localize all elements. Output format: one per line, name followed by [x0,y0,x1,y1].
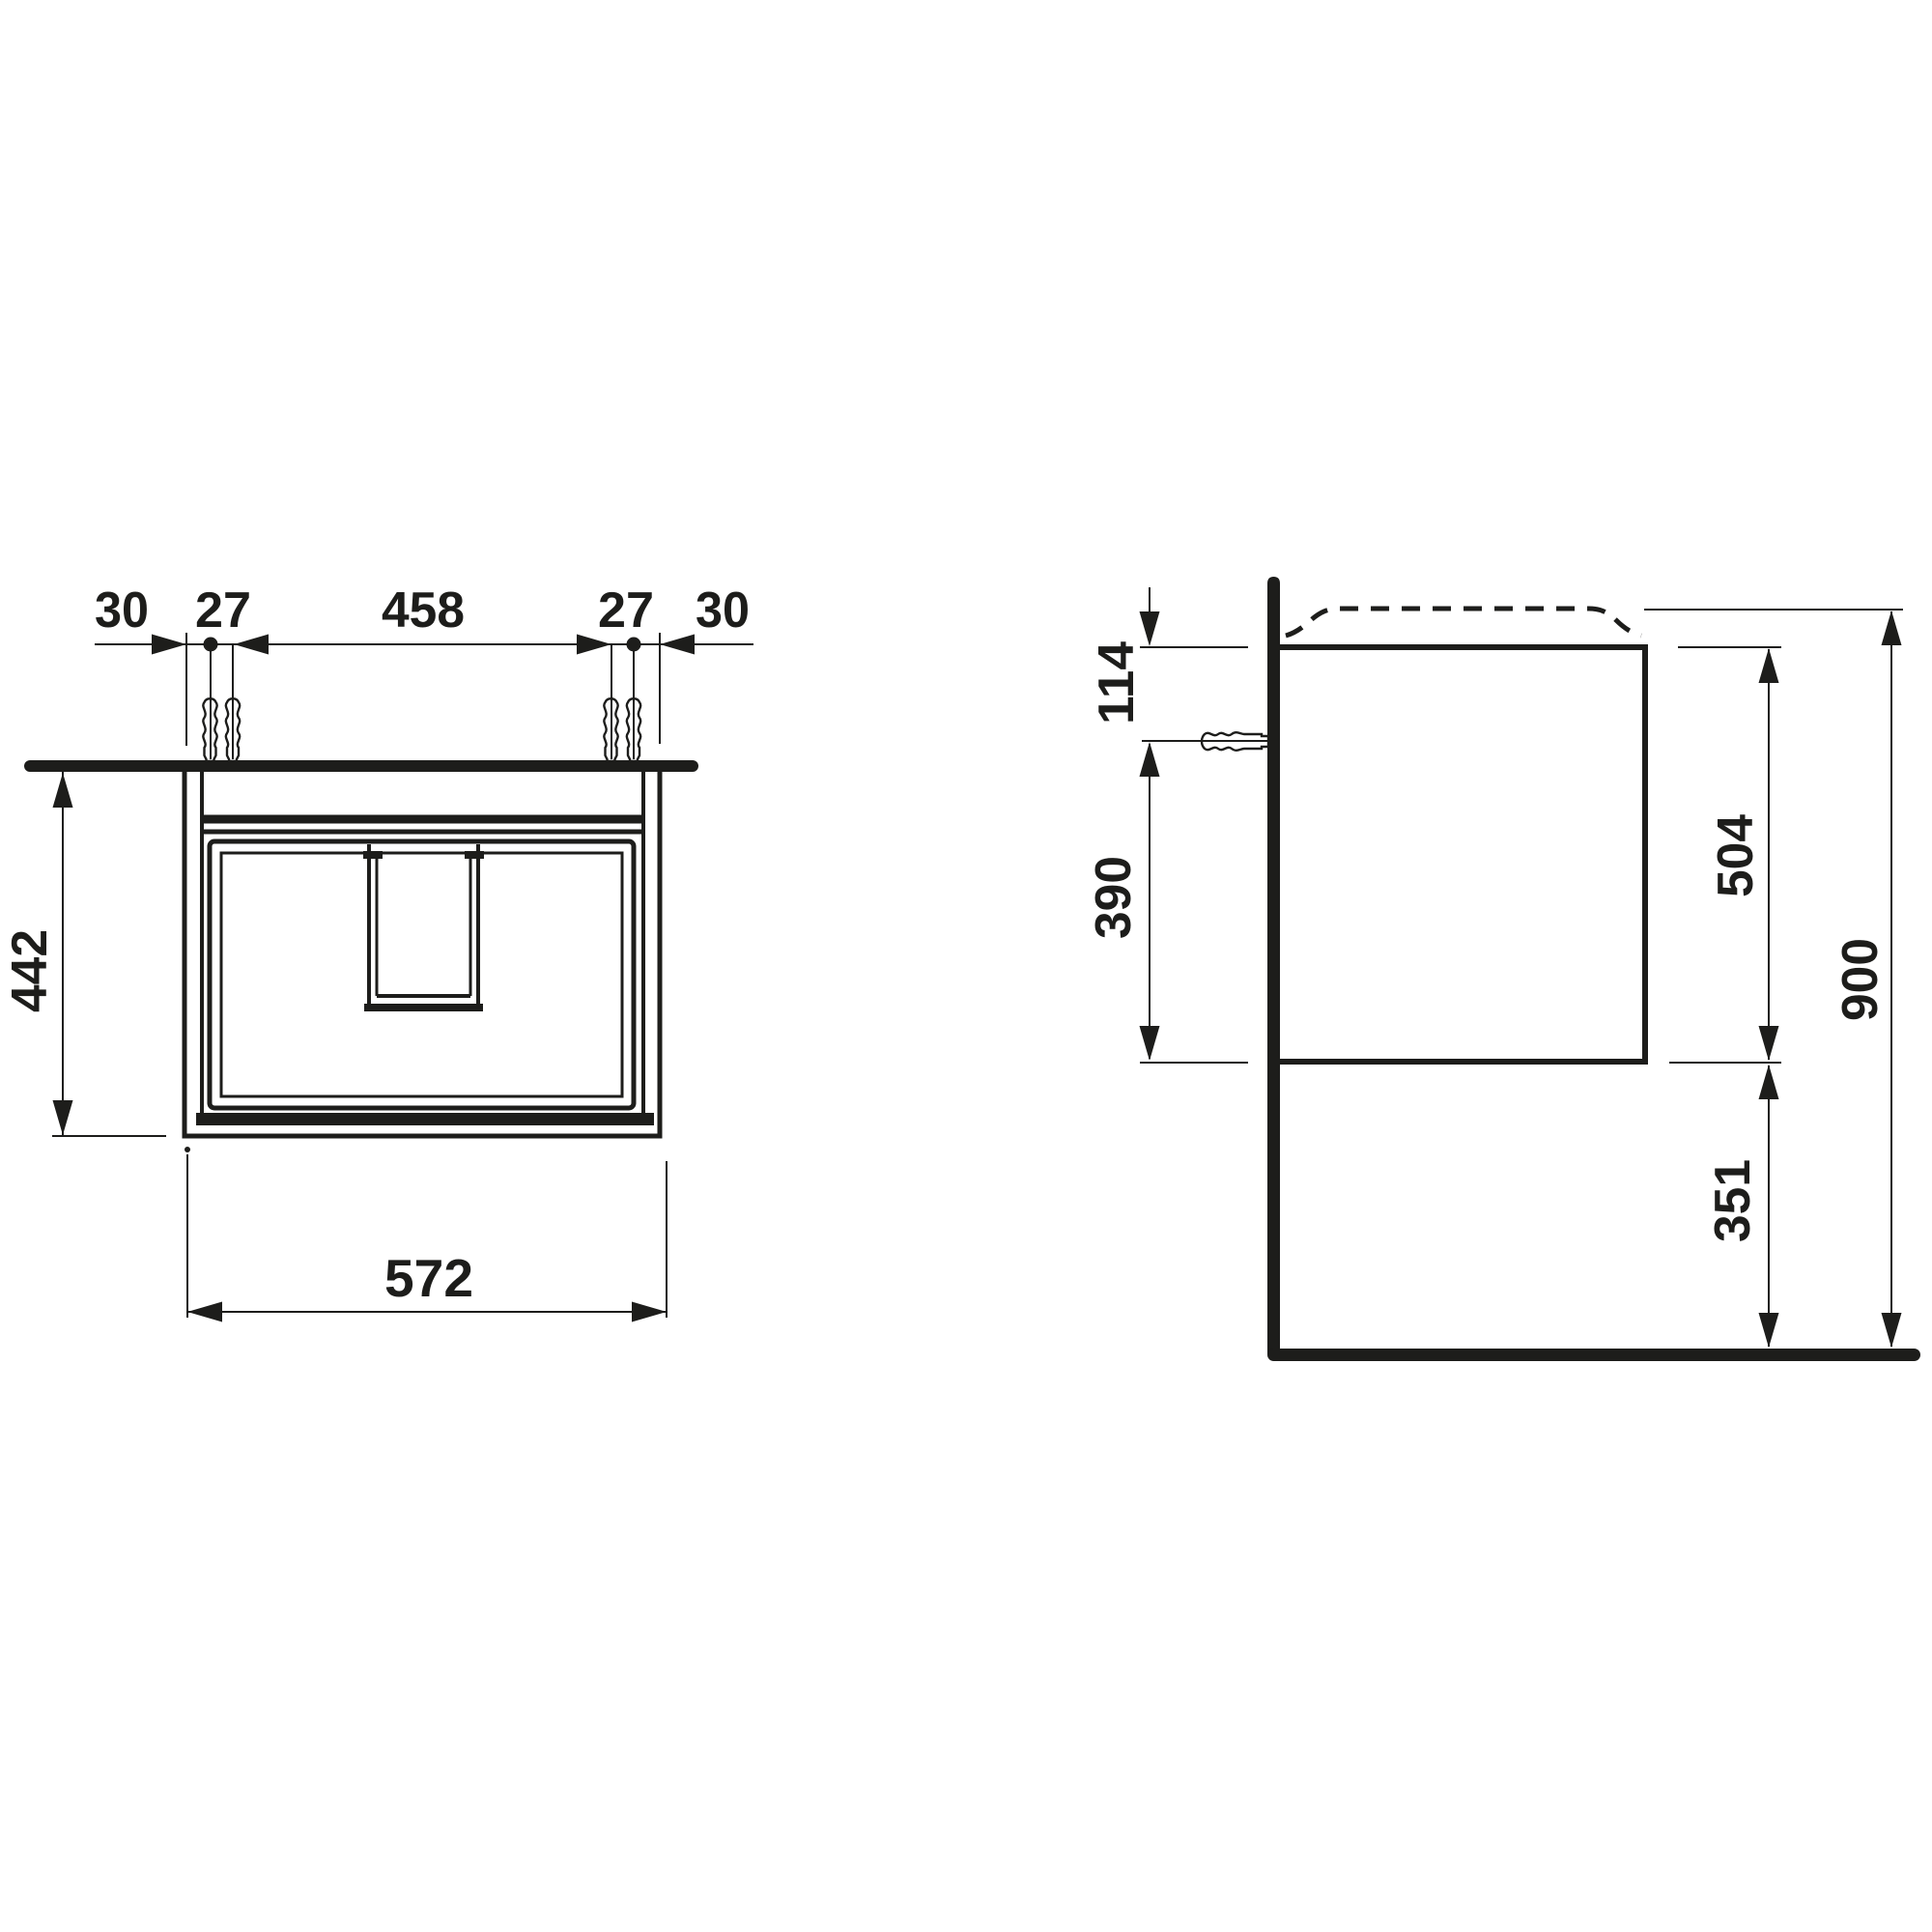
cutout-bottom-bar [364,1004,483,1011]
arrowhead [1759,1026,1779,1061]
dim-label-overhang-right: 30 [696,582,750,639]
dimension-dot [627,638,641,652]
cutout-top-stub-right [465,851,484,859]
dimension-front-width: 572 [185,1147,667,1322]
dim-label-hole-span: 458 [382,582,465,639]
dim-label-floor-clearance: 351 [1705,1159,1761,1242]
dim-label-hole-gap-left: 27 [195,582,251,639]
wall [1267,577,1280,1354]
front-view: 30 27 458 27 30 442 572 [2,582,753,1322]
side-view: 114 390 504 351 [1086,577,1920,1361]
arrowhead [53,773,73,808]
dim-label-body-width: 572 [384,1248,473,1308]
floor [1267,1349,1920,1361]
plinth-bar [196,1113,654,1125]
arrowhead [660,635,695,655]
dim-label-body-height-side: 504 [1708,814,1764,897]
drawer-front-outer [210,841,634,1108]
washbasin-dashed-outline [1286,609,1641,636]
dim-label-hole-gap-right: 27 [598,582,654,639]
arrowhead [53,1100,73,1135]
arrowhead [1759,1313,1779,1348]
dim-label-overhang-left: 30 [95,582,149,639]
arrowhead [1140,1026,1160,1061]
cabinet-outline [185,772,660,1136]
extension-dot [185,1147,190,1152]
arrowhead [1882,1313,1902,1348]
dimension-body-and-clearance: 504 351 [1669,647,1781,1348]
dimension-total-height: 900 [1644,610,1903,1348]
technical-drawing-page: 30 27 458 27 30 442 572 [0,0,1932,1932]
vanity-dimension-drawing: 30 27 458 27 30 442 572 [0,0,1932,1932]
cutout-top-stub-left [363,851,383,859]
countertop-bar [24,760,698,772]
drawer-front-inner [221,853,622,1096]
dimension-fixing-to-bottom: 390 [1086,742,1248,1063]
dimension-top-to-fixing: 114 [1089,587,1248,724]
arrowhead [152,635,186,655]
arrowhead [632,1302,667,1322]
cabinet-inner-structure [202,772,643,1113]
cabinet-side-outline [1280,644,1648,1065]
dimension-front-height: 442 [2,772,166,1136]
dim-label-top-to-fixing: 114 [1089,641,1145,724]
dim-label-total-height: 900 [1833,938,1889,1021]
dim-label-body-height: 442 [2,929,58,1012]
dimension-dot [204,638,218,652]
arrowhead [187,1302,222,1322]
arrowhead [1140,611,1160,646]
dim-label-fixing-to-bottom: 390 [1086,856,1142,939]
wall-plugs-front [203,698,640,761]
dimension-top-chain: 30 27 458 27 30 [95,582,753,759]
